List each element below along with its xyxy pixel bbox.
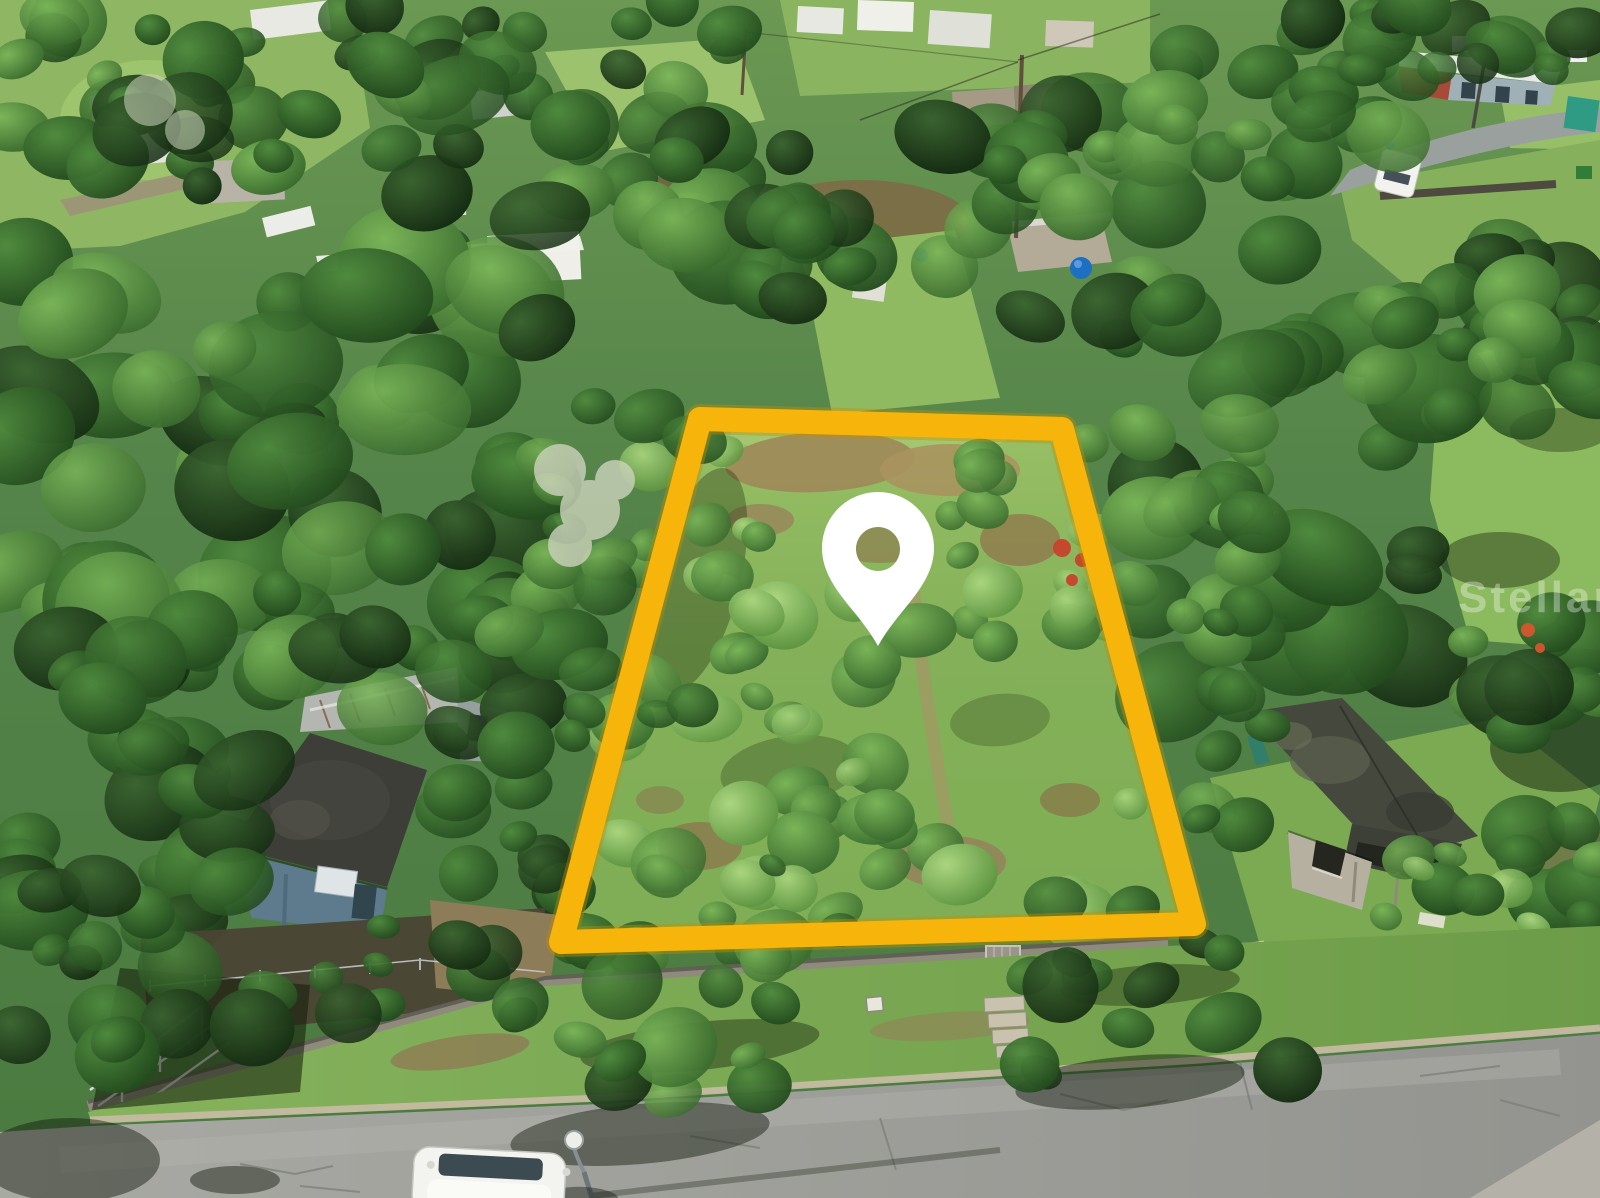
utility-marker xyxy=(866,996,883,1012)
louver-window xyxy=(314,866,357,897)
blue-water-tank xyxy=(1070,257,1092,279)
watermark-text: StellarMLS xyxy=(1458,573,1600,622)
listing-photo: StellarMLS xyxy=(0,0,1600,1198)
aerial-photo: StellarMLS xyxy=(0,0,1600,1198)
street-sign xyxy=(1576,166,1592,179)
